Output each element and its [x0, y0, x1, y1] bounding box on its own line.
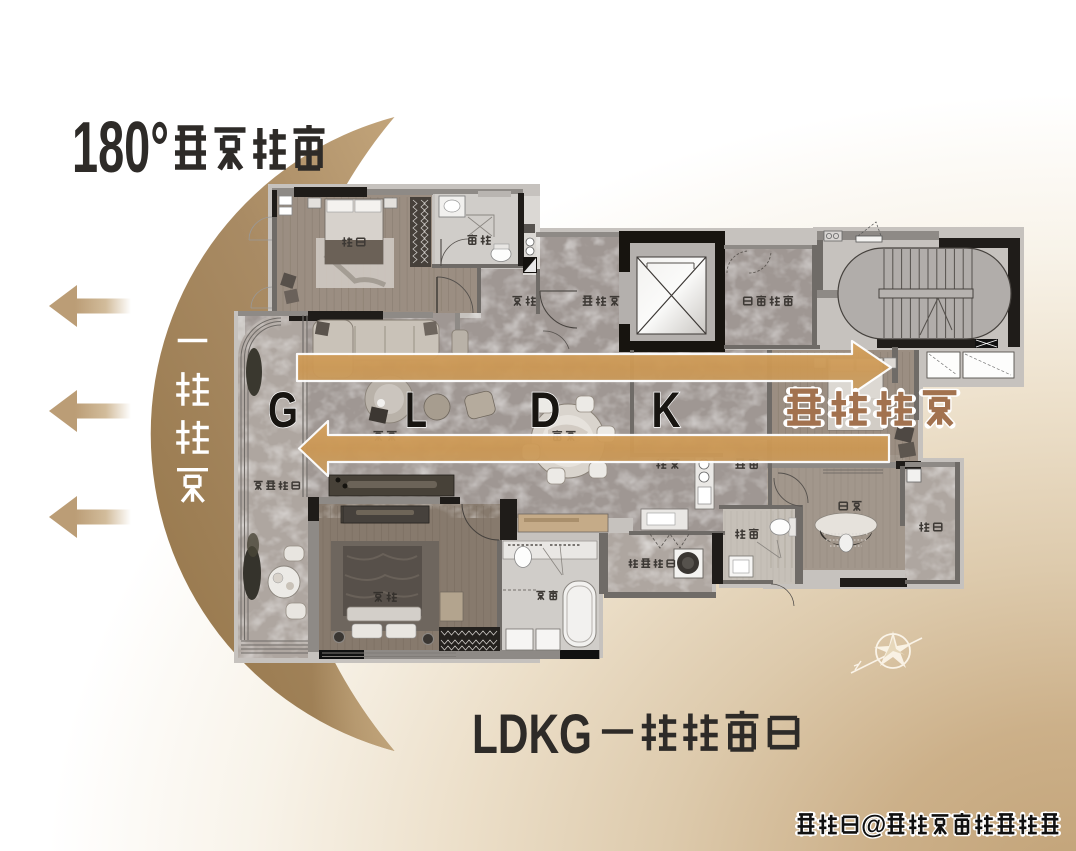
svg-text:180°: 180°	[72, 108, 169, 188]
svg-text:L: L	[405, 382, 427, 438]
svg-text:K: K	[652, 382, 681, 438]
svg-text:D: D	[530, 382, 561, 438]
svg-text:G: G	[268, 382, 298, 438]
svg-text:LDKG: LDKG	[472, 702, 592, 765]
svg-text:@: @	[861, 809, 886, 839]
